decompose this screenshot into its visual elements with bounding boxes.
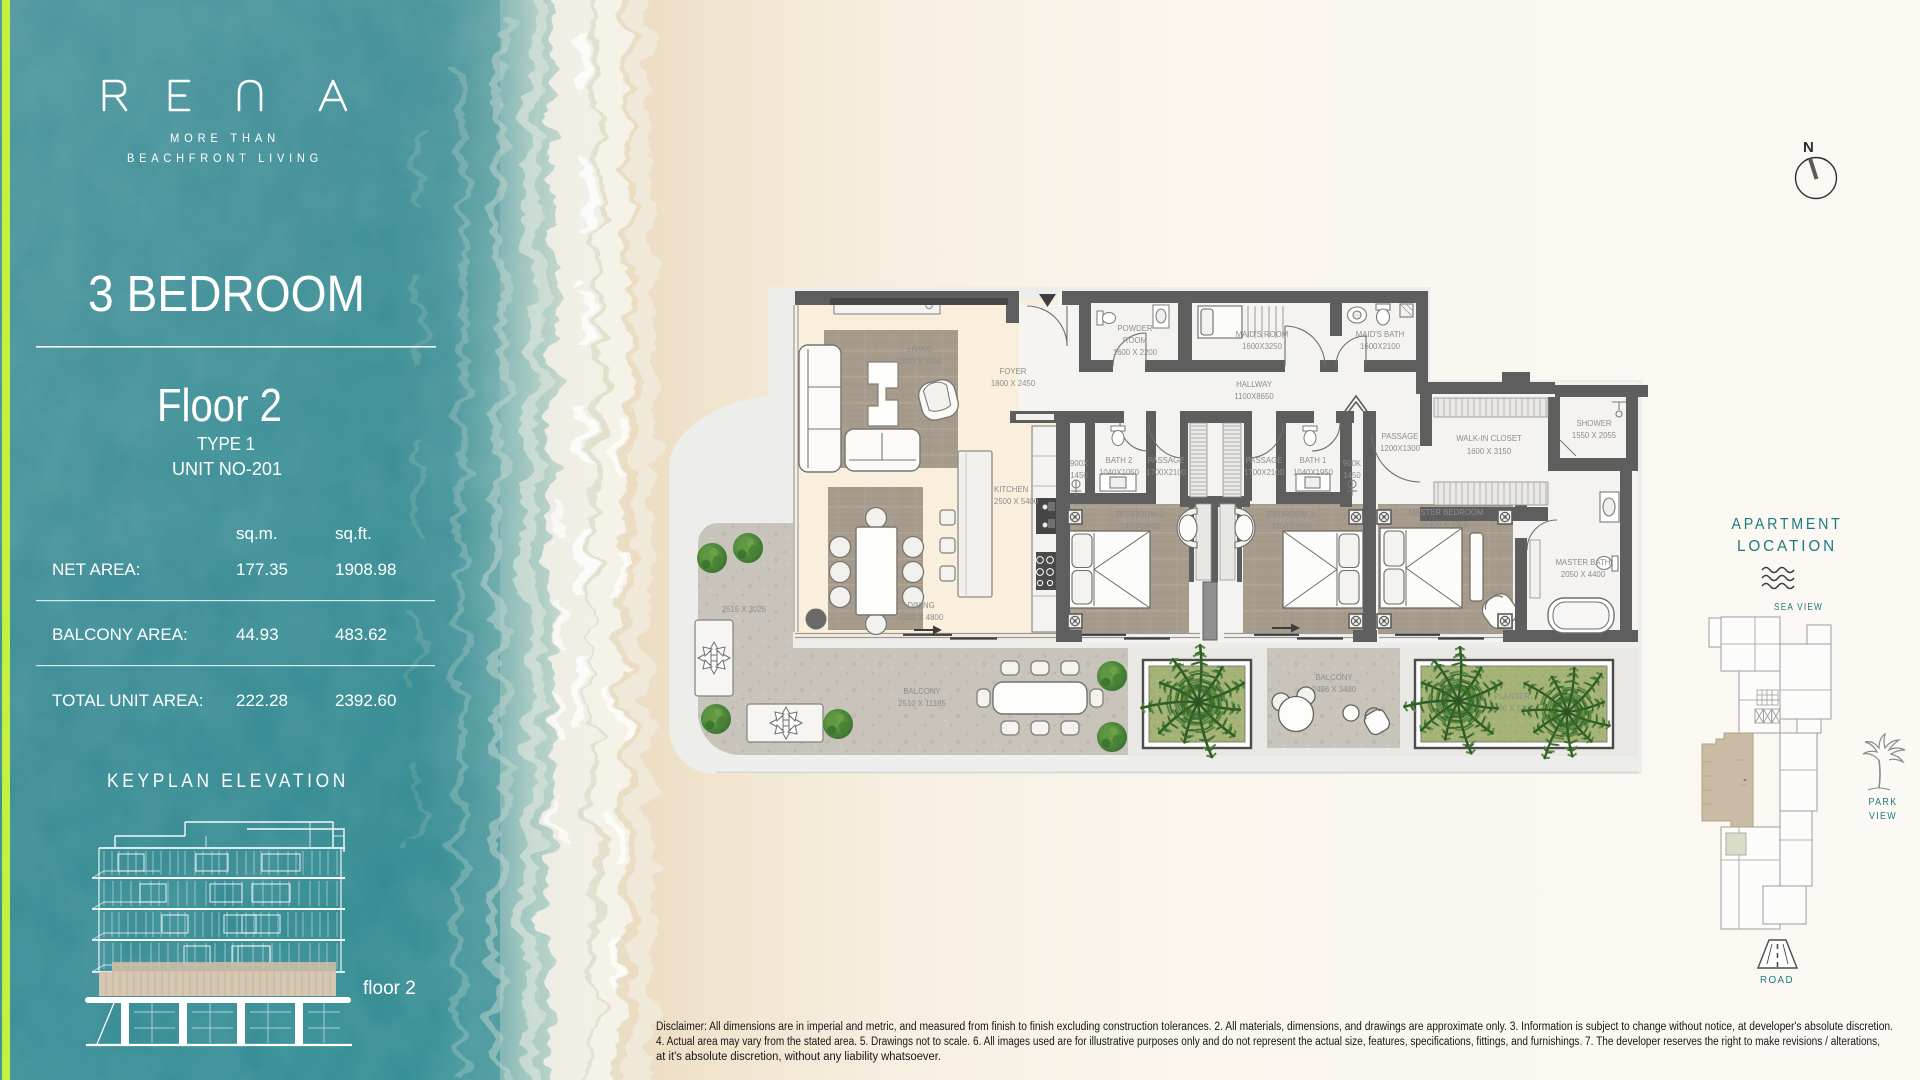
svg-text:1600X3250: 1600X3250 (1242, 342, 1283, 351)
svg-text:MAID'S BATH: MAID'S BATH (1356, 330, 1405, 339)
svg-text:TYPE 1: TYPE 1 (197, 434, 255, 454)
svg-text:1908.98: 1908.98 (335, 560, 396, 579)
svg-text:1700X2100: 1700X2100 (1146, 468, 1187, 477)
svg-text:3900 X 5450: 3900 X 5450 (898, 357, 943, 366)
svg-text:1550 X 2055: 1550 X 2055 (1572, 431, 1617, 440)
svg-text:LOCATION: LOCATION (1737, 538, 1837, 555)
svg-text:BALCONY AREA:: BALCONY AREA: (52, 625, 188, 644)
svg-text:VIEW: VIEW (1869, 811, 1897, 822)
svg-text:KEYPLAN ELEVATION: KEYPLAN ELEVATION (107, 771, 349, 792)
svg-text:SEA VIEW: SEA VIEW (1774, 602, 1823, 613)
svg-text:HALLWAY: HALLWAY (1236, 380, 1273, 389)
svg-text:1100X8650: 1100X8650 (1234, 392, 1274, 401)
svg-text:FOYER: FOYER (1000, 367, 1027, 376)
svg-text:BATH 1: BATH 1 (1300, 456, 1327, 465)
svg-text:KITCHEN: KITCHEN (994, 485, 1028, 494)
svg-text:2496 X 3430: 2496 X 3430 (1312, 685, 1357, 694)
svg-text:LIVING: LIVING (907, 345, 933, 354)
svg-text:1450: 1450 (1343, 471, 1361, 480)
svg-text:4. Actual area may vary from t: 4. Actual area may vary from the stated … (656, 1036, 1880, 1048)
svg-text:900X: 900X (1070, 459, 1089, 468)
svg-text:POWDER: POWDER (1117, 324, 1152, 333)
svg-text:BEDROOM 1: BEDROOM 1 (1268, 510, 1315, 519)
svg-text:BALCONY: BALCONY (903, 687, 941, 696)
svg-text:44.93: 44.93 (236, 625, 279, 644)
svg-text:3450X3800: 3450X3800 (1271, 522, 1312, 531)
svg-text:BEACHFRONT LIVING: BEACHFRONT LIVING (127, 153, 323, 165)
svg-text:1600X2100: 1600X2100 (1360, 342, 1401, 351)
svg-text:Floor 2: Floor 2 (157, 379, 282, 431)
svg-text:PASSAGE: PASSAGE (1382, 432, 1419, 441)
svg-text:1450: 1450 (1070, 471, 1088, 480)
svg-text:1040X1050: 1040X1050 (1099, 468, 1140, 477)
svg-text:MASTER BATH: MASTER BATH (1556, 558, 1611, 567)
svg-text:4150 X 4800: 4150 X 4800 (899, 613, 944, 622)
svg-text:2515 X 3025: 2515 X 3025 (722, 605, 767, 614)
svg-text:PASSAGE: PASSAGE (1246, 456, 1283, 465)
svg-text:1800 X 2450: 1800 X 2450 (991, 379, 1036, 388)
svg-text:3450X3800: 3450X3800 (1120, 522, 1161, 531)
svg-text:UNIT NO-201: UNIT NO-201 (172, 459, 282, 479)
svg-text:SHOWER: SHOWER (1576, 419, 1611, 428)
svg-text:APARTMENT: APARTMENT (1732, 516, 1843, 533)
svg-text:sq.ft.: sq.ft. (335, 524, 372, 543)
svg-text:MAID'S ROOM: MAID'S ROOM (1236, 330, 1289, 339)
svg-text:1600 X 2200: 1600 X 2200 (1113, 348, 1158, 357)
svg-text:1040X1950: 1040X1950 (1293, 468, 1334, 477)
svg-text:BATH 2: BATH 2 (1106, 456, 1133, 465)
svg-text:Disclaimer: All dimensions are: Disclaimer: All dimensions are in imperi… (656, 1021, 1893, 1033)
svg-text:floor 2: floor 2 (363, 978, 416, 999)
svg-text:ROAD: ROAD (1760, 975, 1794, 986)
svg-text:DINING: DINING (907, 601, 934, 610)
svg-text:4400 X 3900: 4400 X 3900 (1424, 520, 1469, 529)
svg-text:2510 X 11185: 2510 X 11185 (898, 699, 946, 708)
svg-text:PLANTER: PLANTER (1494, 692, 1530, 701)
svg-text:BEDROOM 2: BEDROOM 2 (1117, 510, 1164, 519)
svg-text:NET AREA:: NET AREA: (52, 560, 141, 579)
svg-text:BALCONY: BALCONY (1315, 673, 1353, 682)
svg-text:1700X2100: 1700X2100 (1244, 468, 1285, 477)
svg-text:PASSAGE: PASSAGE (1148, 456, 1185, 465)
svg-text:2050 X 4400: 2050 X 4400 (1561, 570, 1606, 579)
svg-text:MASTER BEDROOM: MASTER BEDROOM (1409, 508, 1484, 517)
svg-text:2392.60: 2392.60 (335, 691, 396, 710)
svg-text:900K: 900K (1343, 459, 1362, 468)
svg-text:sq.m.: sq.m. (236, 524, 278, 543)
svg-text:2500 X 5400: 2500 X 5400 (994, 497, 1039, 506)
svg-text:3 BEDROOM: 3 BEDROOM (88, 265, 365, 322)
svg-text:222.28: 222.28 (236, 691, 288, 710)
svg-text:ROOM: ROOM (1123, 336, 1147, 345)
svg-text:PARK: PARK (1869, 797, 1898, 808)
svg-text:TOTAL UNIT AREA:: TOTAL UNIT AREA: (52, 691, 203, 710)
svg-text:WALK-IN CLOSET: WALK-IN CLOSET (1456, 434, 1522, 443)
svg-text:177.35: 177.35 (236, 560, 288, 579)
svg-text:at it's absolute discretion, w: at it's absolute discretion, without any… (656, 1051, 941, 1063)
svg-text:N: N (1803, 139, 1814, 156)
svg-text:1200X1300: 1200X1300 (1380, 444, 1421, 453)
svg-text:1600 X 3150: 1600 X 3150 (1467, 447, 1512, 456)
svg-text:MORE THAN: MORE THAN (170, 133, 280, 145)
svg-text:483.62: 483.62 (335, 625, 387, 644)
